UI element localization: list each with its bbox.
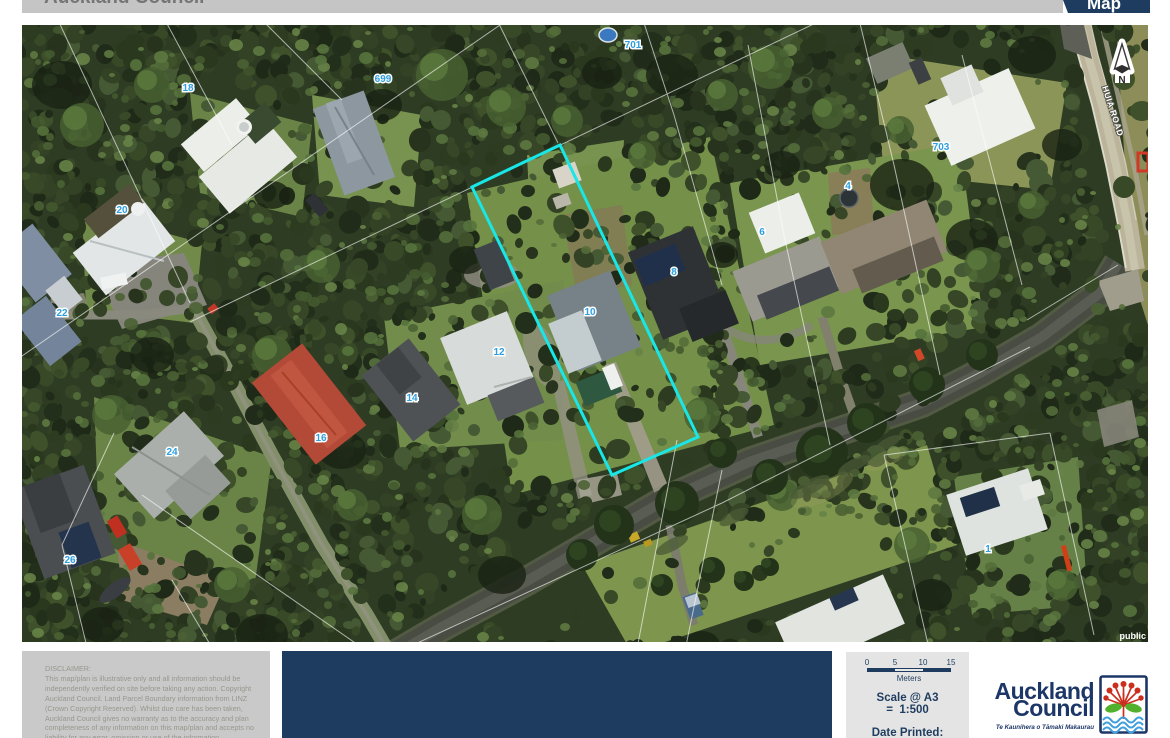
svg-text:26: 26: [64, 555, 76, 566]
svg-text:18: 18: [182, 83, 194, 94]
svg-text:Meters: Meters: [897, 674, 921, 682]
svg-text:15: 15: [947, 658, 956, 667]
svg-text:10: 10: [584, 307, 596, 318]
svg-text:12: 12: [493, 347, 505, 358]
svg-text:24: 24: [166, 447, 178, 458]
svg-text:703: 703: [933, 142, 950, 153]
svg-text:1: 1: [985, 544, 991, 555]
svg-text:5: 5: [893, 658, 898, 667]
svg-text:4: 4: [845, 181, 851, 192]
svg-text:0: 0: [865, 658, 870, 667]
svg-text:20: 20: [116, 205, 128, 216]
svg-text:10: 10: [919, 658, 928, 667]
svg-text:16: 16: [315, 433, 327, 444]
svg-text:14: 14: [406, 393, 418, 404]
svg-text:701: 701: [625, 40, 642, 51]
svg-text:22: 22: [56, 308, 68, 319]
svg-text:699: 699: [375, 74, 392, 85]
svg-text:Map: Map: [1087, 0, 1121, 13]
svg-text:public: public: [1120, 631, 1147, 641]
svg-text:8: 8: [671, 267, 677, 278]
svg-text:6: 6: [759, 227, 765, 238]
svg-text:N: N: [1118, 75, 1125, 86]
